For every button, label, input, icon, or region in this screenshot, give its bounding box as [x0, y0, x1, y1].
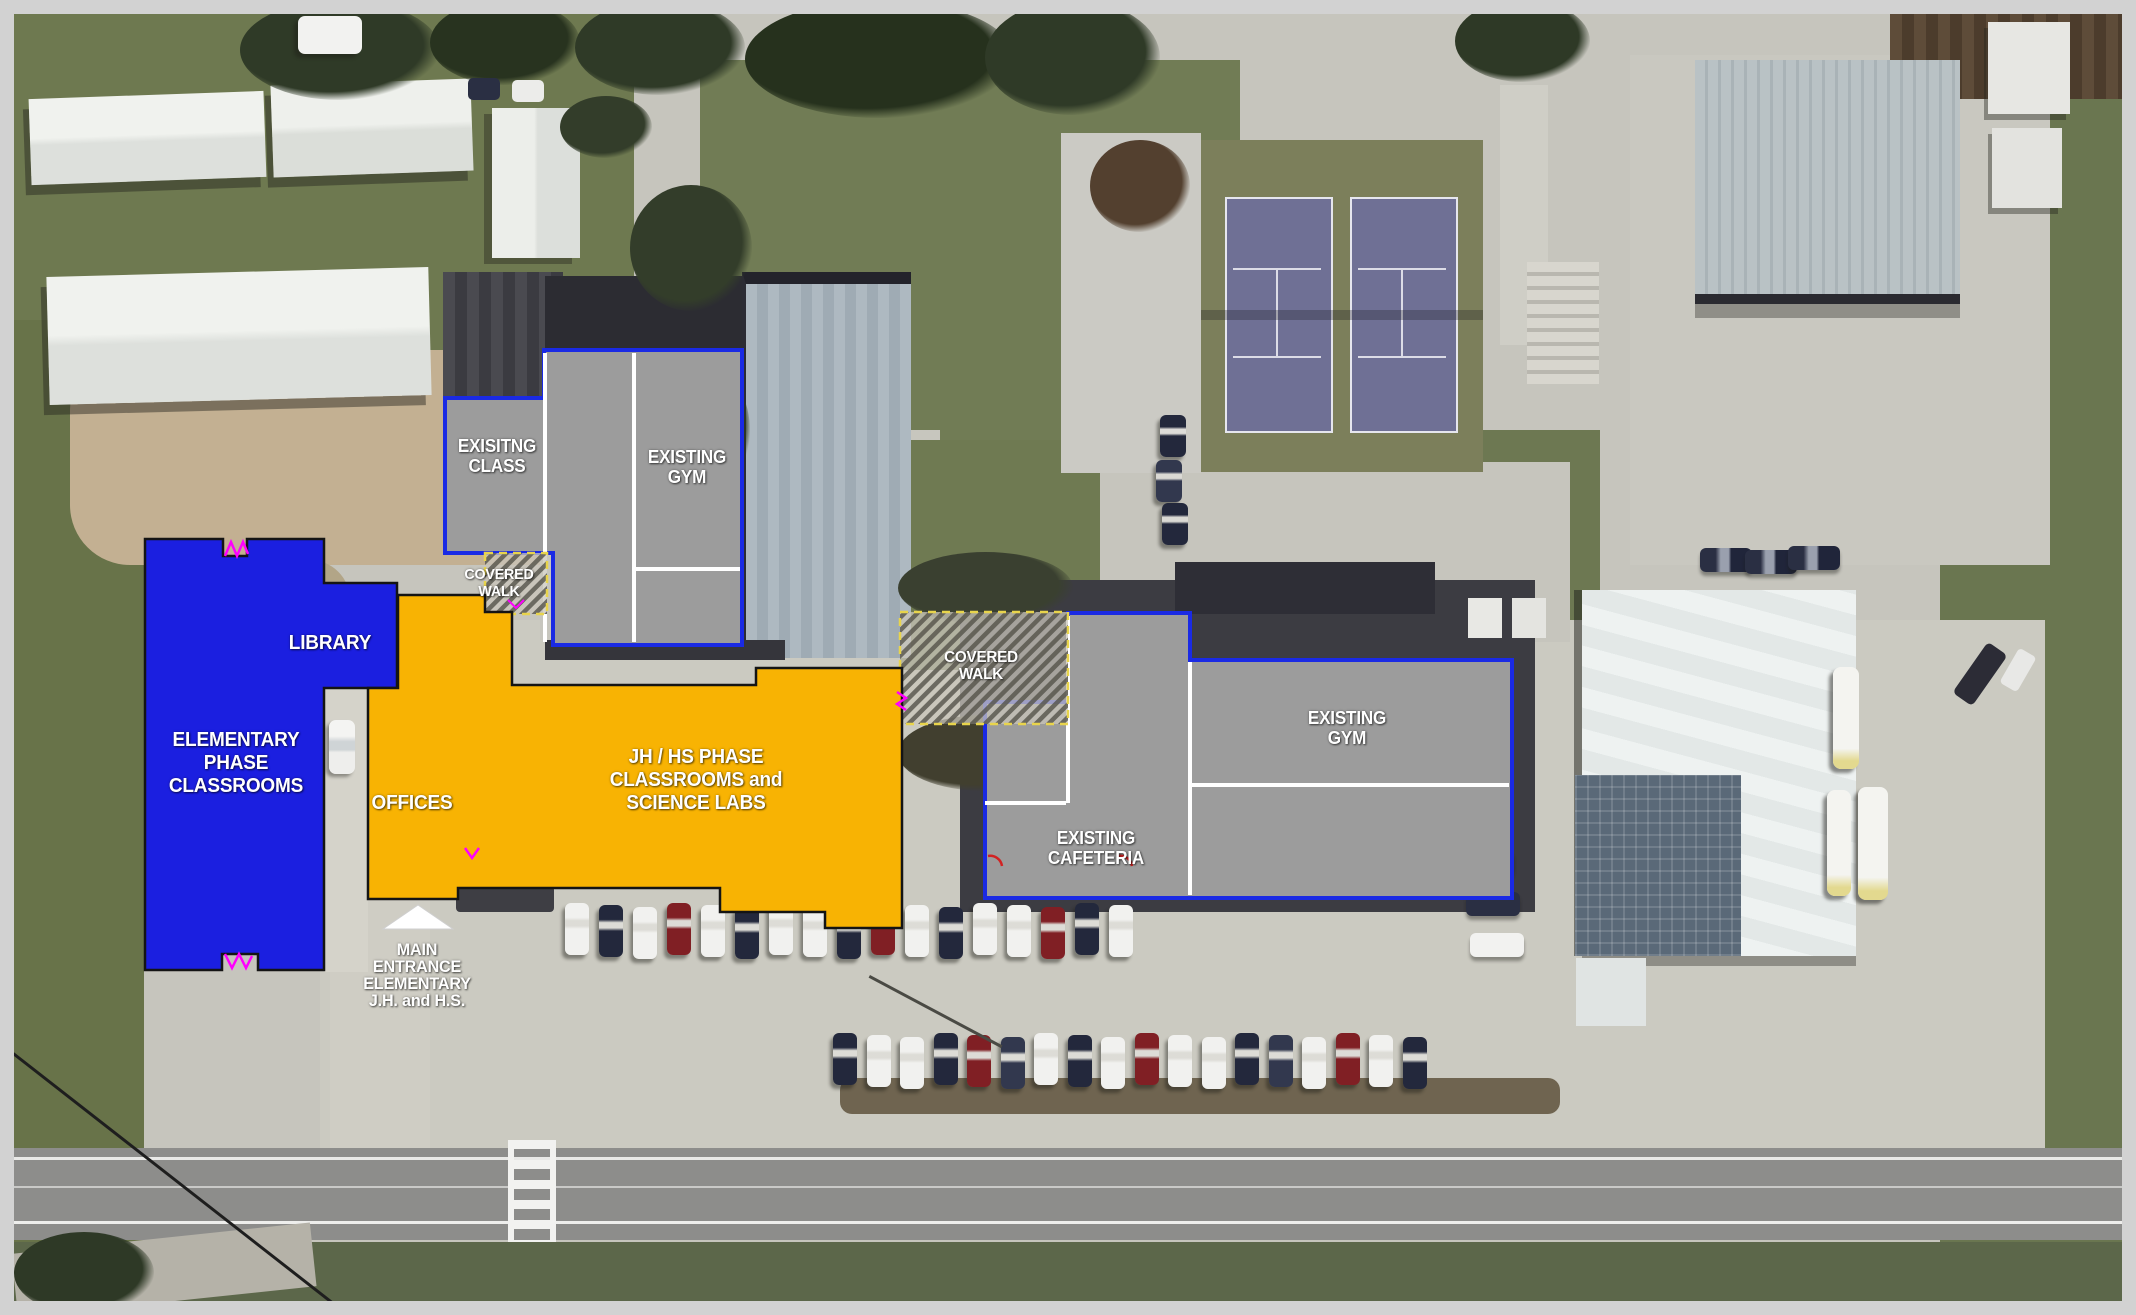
shed-building	[1992, 128, 2062, 208]
road	[14, 1148, 2122, 1240]
label-line: COVERED	[944, 649, 1018, 666]
label-line: ELEMENTARY	[363, 975, 471, 992]
parking-car	[565, 903, 589, 955]
rooftop-unit	[1512, 598, 1546, 638]
aerial-photo-layers	[14, 14, 2122, 1301]
parking-car	[939, 907, 963, 959]
road-edge-line	[14, 1157, 2122, 1160]
label-line: SCIENCE LABS	[610, 792, 783, 815]
parking-car	[867, 1035, 891, 1087]
metal-building	[1695, 60, 1960, 304]
label-existing-gym-east: EXISTING GYM	[1308, 708, 1386, 748]
school-bus	[1858, 787, 1888, 900]
site-plan-screenshot: EXISITNG CLASS EXISTING GYM COVERED WALK…	[0, 0, 2136, 1315]
parking-car	[1068, 1035, 1092, 1087]
parking-car	[900, 1037, 924, 1089]
label-line: WALK	[944, 666, 1018, 683]
parking-car	[701, 905, 725, 957]
label-line: J.H. and H.S.	[363, 992, 471, 1009]
parking-car	[468, 78, 500, 100]
parking-car	[833, 1033, 857, 1085]
parking-car	[1403, 1037, 1427, 1089]
parking-car	[1269, 1035, 1293, 1087]
label-jh-hs-classrooms: JH / HS PHASE CLASSROOMS and SCIENCE LAB…	[610, 746, 783, 815]
school-bus	[1833, 667, 1859, 769]
label-elementary-classrooms: ELEMENTARY PHASE CLASSROOMS	[169, 729, 303, 798]
label-existing-class: EXISITNG CLASS	[458, 436, 536, 476]
entrance-walk	[448, 852, 558, 886]
parking-car	[1109, 905, 1133, 957]
parking-car	[967, 1035, 991, 1087]
parking-car	[1302, 1037, 1326, 1089]
label-offices: OFFICES	[371, 792, 452, 815]
road-lane-line	[14, 1221, 2122, 1224]
parking-car	[837, 907, 861, 959]
entrance-canopy	[456, 886, 554, 912]
tree-cluster	[560, 96, 652, 158]
parking-car	[329, 720, 355, 774]
parking-car	[973, 903, 997, 955]
label-existing-gym-north: EXISTING GYM	[648, 447, 726, 487]
parking-car	[1156, 460, 1182, 502]
parking-car	[667, 903, 691, 955]
parking-car	[1160, 415, 1186, 457]
label-line: LIBRARY	[289, 632, 371, 655]
label-line: CLASSROOMS and	[610, 769, 783, 792]
tree-cluster	[630, 185, 752, 311]
parking-car	[1007, 905, 1031, 957]
label-main-entrance: MAIN ENTRANCE ELEMENTARY J.H. and H.S.	[363, 941, 471, 1009]
label-covered-walk-north: COVERED WALK	[464, 566, 533, 600]
parking-car	[871, 903, 895, 955]
label-line: EXISTING	[1048, 828, 1144, 848]
label-line: CLASS	[458, 456, 536, 476]
parking-car	[599, 905, 623, 957]
label-line: CAFETERIA	[1048, 848, 1144, 868]
label-line: EXISTING	[648, 447, 726, 467]
parking-car	[1075, 903, 1099, 955]
parking-car	[1001, 1037, 1025, 1089]
label-line: COVERED	[464, 566, 533, 583]
label-line: CLASSROOMS	[169, 775, 303, 798]
parking-car	[803, 905, 827, 957]
label-line: OFFICES	[371, 792, 452, 815]
parking-car	[769, 903, 793, 955]
label-line: PHASE	[169, 752, 303, 775]
parking-car	[1788, 546, 1840, 570]
label-line: EXISTING	[1308, 708, 1386, 728]
school-bus	[1827, 790, 1851, 896]
label-covered-walk-central: COVERED WALK	[944, 649, 1018, 683]
parking-car	[1369, 1035, 1393, 1087]
parking-car	[633, 907, 657, 959]
barn-building	[29, 91, 267, 185]
parking-car	[1168, 1035, 1192, 1087]
shed-building	[1988, 22, 2070, 114]
label-line: MAIN	[363, 941, 471, 958]
parking-car	[1162, 503, 1188, 545]
parking-car	[1470, 933, 1524, 957]
label-line: GYM	[648, 467, 726, 487]
crosswalk-ladder	[508, 1140, 556, 1244]
tree-cluster	[1455, 14, 1590, 82]
tree-cluster	[898, 552, 1073, 624]
grass-area	[14, 1242, 2122, 1301]
label-line: WALK	[464, 583, 533, 600]
parking-car	[934, 1033, 958, 1085]
label-line: EXISITNG	[458, 436, 536, 456]
parking-car	[1460, 850, 1514, 874]
dark-roof	[545, 640, 785, 660]
label-library: LIBRARY	[289, 632, 371, 655]
label-line: GYM	[1308, 728, 1386, 748]
parking-car	[1466, 892, 1520, 916]
parking-car	[905, 905, 929, 957]
court-shadow	[1201, 310, 1483, 320]
tree-cluster	[1090, 140, 1190, 232]
parking-car	[1101, 1037, 1125, 1089]
parking-car	[1135, 1033, 1159, 1085]
parking-car	[735, 907, 759, 959]
parking-van	[298, 16, 362, 54]
parking-car	[512, 80, 544, 102]
bleacher-pad	[1527, 262, 1599, 384]
shed-building	[1576, 958, 1646, 1026]
rooftop-unit	[1468, 598, 1502, 638]
maintenance-building-dark-section	[1575, 775, 1741, 956]
label-line: JH / HS PHASE	[610, 746, 783, 769]
road-lane-line	[14, 1186, 2122, 1188]
label-line: ELEMENTARY	[169, 729, 303, 752]
barn-building	[46, 267, 431, 405]
dark-roof	[1175, 562, 1435, 614]
parking-car	[1034, 1033, 1058, 1085]
parking-car	[1235, 1033, 1259, 1085]
gym-roof-east	[742, 272, 911, 658]
tree-cluster	[898, 715, 1073, 791]
parking-car	[1202, 1037, 1226, 1089]
label-existing-cafeteria: EXISTING CAFETERIA	[1048, 828, 1144, 868]
parking-car	[1041, 907, 1065, 959]
parking-car	[1336, 1033, 1360, 1085]
label-line: ENTRANCE	[363, 958, 471, 975]
aerial-photo	[14, 14, 2122, 1301]
